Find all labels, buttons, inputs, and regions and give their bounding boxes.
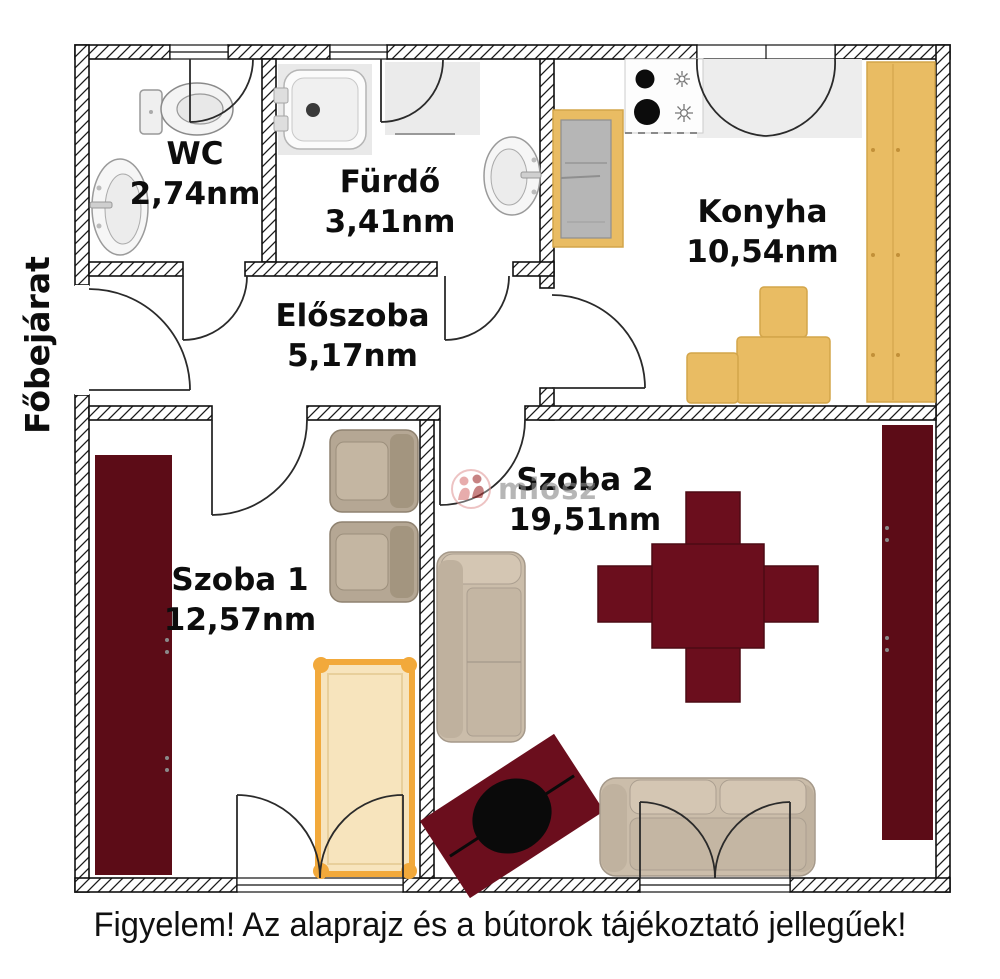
kitchen-door-arc [552, 295, 645, 388]
wardrobe-icon [95, 455, 172, 875]
main-entrance-opening [75, 285, 89, 395]
room-name: WC [95, 134, 295, 174]
room-label-wc: WC 2,74nm [95, 134, 295, 214]
wall [540, 59, 554, 288]
wall [835, 45, 950, 59]
watermark-text: miosz [498, 472, 597, 506]
wall [89, 262, 183, 276]
wall [790, 878, 950, 892]
kitchen-boxes-icon [687, 287, 830, 403]
room-name: Fürdő [295, 162, 485, 202]
kitchen-cabinet-icon [867, 62, 935, 402]
room-area: 10,54nm [655, 232, 870, 272]
wall [403, 878, 640, 892]
wall [936, 45, 950, 892]
wall [420, 420, 434, 878]
wall [513, 262, 554, 276]
room-label-hall: Előszoba 5,17nm [245, 296, 460, 376]
wall [525, 406, 936, 420]
wall [228, 45, 330, 59]
wall [387, 45, 697, 59]
room-name: Konyha [655, 192, 870, 232]
room-label-bathroom: Fürdő 3,41nm [295, 162, 485, 242]
room-label-kitchen: Konyha 10,54nm [655, 192, 870, 272]
wc-door-arc [183, 276, 247, 340]
room-area: 3,41nm [295, 202, 485, 242]
wall [245, 262, 437, 276]
room-area: 12,57nm [130, 600, 350, 640]
room-area: 2,74nm [95, 174, 295, 214]
wall [307, 406, 440, 420]
watermark: miosz [448, 466, 597, 512]
sofa-icon [437, 552, 525, 742]
watermark-logo-icon [448, 466, 494, 512]
wall [89, 406, 212, 420]
kitchen-counter-area [697, 59, 862, 138]
room-label-room1: Szoba 1 12,57nm [130, 560, 350, 640]
wall [75, 395, 89, 892]
toilet-icon [140, 83, 233, 135]
floor-plan: WC 2,74nm Fürdő 3,41nm Konyha 10,54nm El… [0, 0, 1000, 979]
bathroom-sink-icon [484, 137, 541, 215]
fridge-icon [553, 110, 623, 247]
stove-icon [625, 59, 703, 133]
bed-icon [313, 657, 417, 879]
room-name: Szoba 1 [130, 560, 350, 600]
main-entrance-door-arc [89, 289, 190, 390]
wardrobe-icon [882, 425, 933, 840]
wall [75, 45, 89, 285]
caption-text: Figyelem! Az alaprajz és a bútorok tájék… [20, 906, 980, 945]
washing-machine-icon [385, 62, 480, 135]
armchair-icon [330, 430, 418, 512]
coffee-table-icon [420, 734, 604, 898]
room-area: 5,17nm [245, 336, 460, 376]
wall [75, 878, 237, 892]
room-name: Előszoba [245, 296, 460, 336]
room1-door-arc [212, 420, 307, 515]
sofa-icon [600, 778, 815, 876]
main-entrance-label: Főbejárat [18, 245, 58, 445]
